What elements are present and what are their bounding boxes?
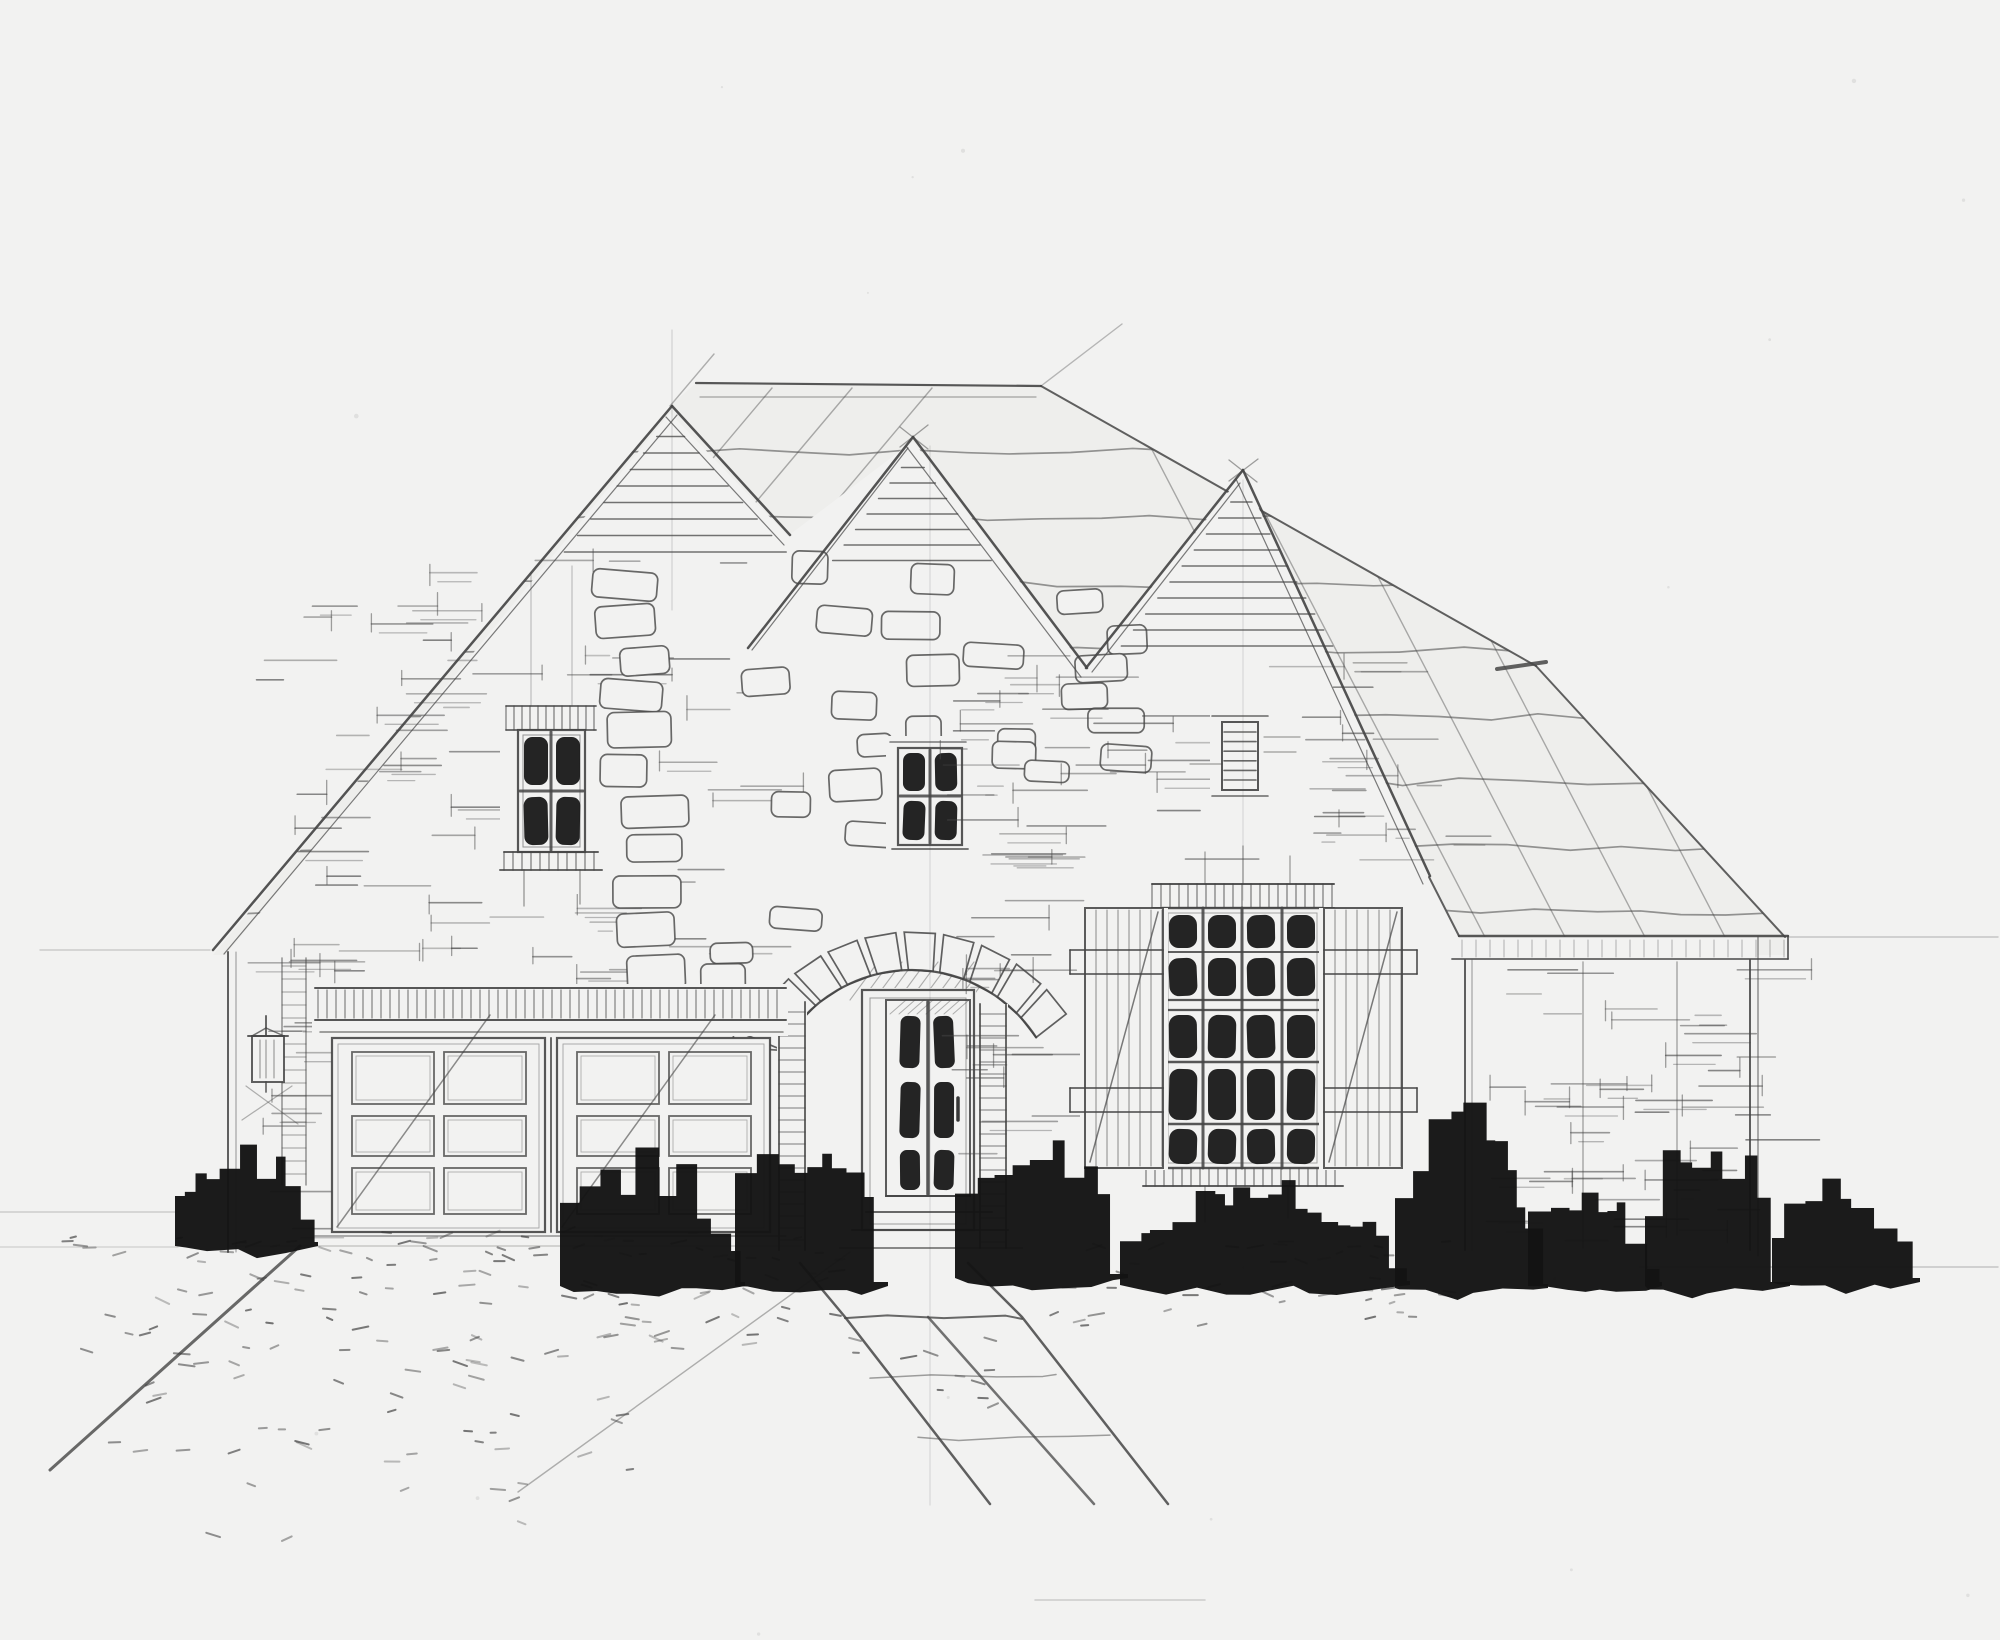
garage-doors bbox=[332, 1015, 770, 1232]
sketch-canvas bbox=[0, 0, 2000, 1640]
main-window bbox=[1140, 846, 1346, 1222]
entry-gable-window bbox=[886, 736, 970, 856]
elevation-sketch bbox=[0, 0, 2000, 1640]
walkway bbox=[800, 1263, 1168, 1504]
